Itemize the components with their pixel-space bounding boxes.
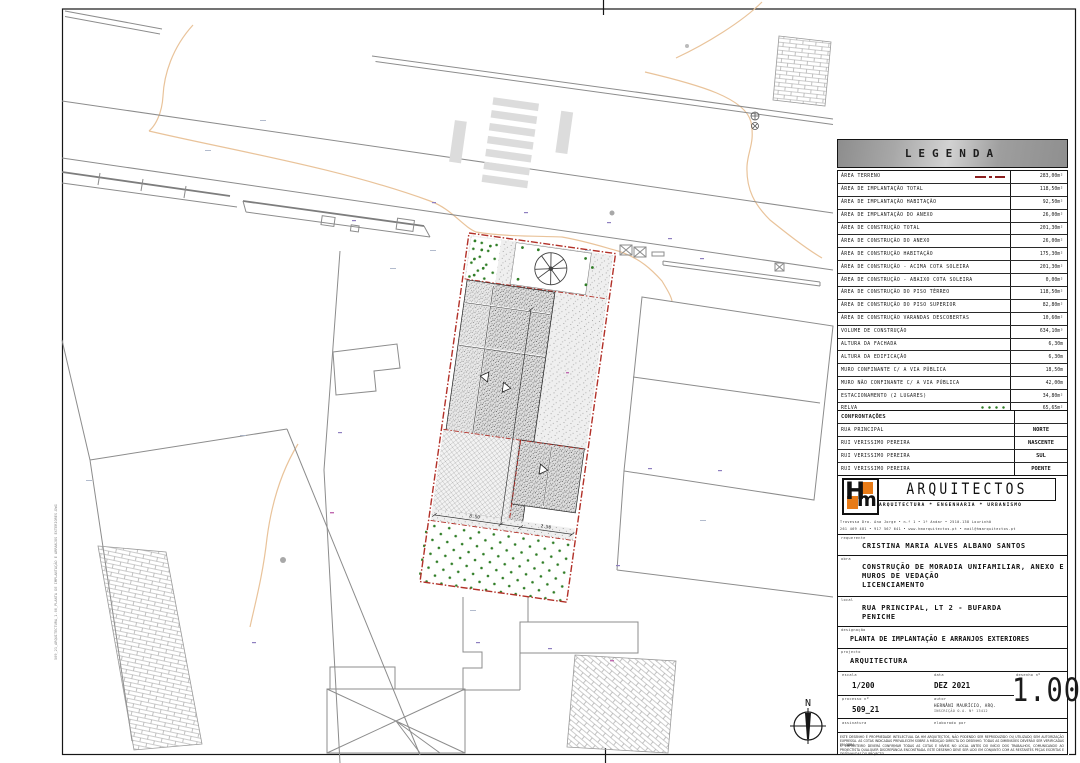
legend-row-value: 118,50m²	[1010, 184, 1067, 196]
legend-row-value: 26,00m²	[1010, 210, 1067, 222]
north-label: N	[805, 698, 811, 709]
confrontation-row: RUI VERISSIMO PEREIRASUL	[838, 449, 1067, 462]
legend-row-label: ÁREA DE IMPLANTAÇÃO TOTAL	[838, 187, 1010, 192]
legend-row-value: 6,30m	[1010, 351, 1067, 363]
label-designacao: designação	[841, 628, 866, 632]
legend-row-value: 175,30m²	[1010, 248, 1067, 260]
label-obra: obra	[841, 557, 851, 561]
legend-row: ÁREA DE CONSTRUÇÃO TOTAL201,30m²	[838, 222, 1067, 235]
label-processo: processo nº	[842, 697, 869, 701]
paved-area-southwest	[98, 546, 202, 750]
legend-row: ÁREA DE CONSTRUÇÃO - ACIMA COTA SOLEIRA2…	[838, 260, 1067, 273]
date-value: DEZ 2021	[934, 681, 970, 690]
confrontation-row: RUI VERISSIMO PEREIRANASCENTE	[838, 436, 1067, 449]
confrontation-name: RUI VERISSIMO PEREIRA	[838, 467, 1014, 472]
legend-row-value: 82,80m²	[1010, 300, 1067, 312]
legend-row: ÁREA DE IMPLANTAÇÃO DO ANEXO26,00m²	[838, 209, 1067, 222]
process-number: 509_21	[852, 705, 879, 714]
lot-group: 8.50 2.50	[418, 233, 616, 602]
annex	[512, 440, 584, 512]
roads	[62, 11, 833, 270]
sheet-number: 1.00	[1012, 672, 1064, 709]
title-block-panel: LEGENDA ÁREA TERRENO283,00m² ÁREA DE IMP…	[837, 139, 1069, 755]
firm-name-box: ARQUITECTOS	[878, 478, 1056, 501]
legend-row: ÁREA DE IMPLANTAÇÃO HABITAÇÃO92,50m²	[838, 196, 1067, 209]
legend-row-label: ÁREA DE CONSTRUÇÃO DO PISO SUPERIOR	[838, 303, 1010, 308]
elevation-marks	[86, 120, 722, 661]
legend-row: MURO NÃO CONFINANTE C/ A VIA PÚBLICA42,0…	[838, 376, 1067, 389]
legend-row-value: 10,60m²	[1010, 313, 1067, 325]
neighbor-buildings-west	[62, 208, 420, 763]
legend-row: VOLUME DE CONSTRUÇÃO634,10m³	[838, 325, 1067, 338]
confrontation-side: NASCENTE	[1014, 437, 1067, 449]
legend-title: LEGENDA	[905, 147, 1000, 160]
legend-row-label: ALTURA DA EDIFICAÇÃO	[838, 355, 1010, 360]
legend-row-value: 6,30m	[1010, 339, 1067, 351]
paved-area-northeast	[773, 36, 831, 106]
author-name: HERNÂNI MAURÍCIO, ARQ.	[934, 703, 996, 708]
label-elaborado: elaborado por	[934, 721, 966, 725]
label-assinatura: assinatura	[842, 721, 867, 725]
legend-header: LEGENDA	[837, 139, 1068, 168]
legend-row-value: 92,50m²	[1010, 197, 1067, 209]
legend-row-label: ÁREA DE CONSTRUÇÃO HABITAÇÃO	[838, 252, 1010, 257]
north-arrow-icon: N	[790, 698, 826, 744]
confrontation-side: SUL	[1014, 450, 1067, 462]
legend-row-label: ÁREA DE IMPLANTAÇÃO HABITAÇÃO	[838, 200, 1010, 205]
confrontations-title: CONFRONTAÇÕES	[838, 414, 1014, 420]
legend-row-label: VOLUME DE CONSTRUÇÃO	[838, 329, 1010, 334]
legend-row-label: ÁREA DE CONSTRUÇÃO DO PISO TÉRREO	[838, 290, 1010, 295]
legend-row: ÁREA DE CONSTRUÇÃO HABITAÇÃO175,30m²	[838, 247, 1067, 260]
legend-row-value: 26,00m²	[1010, 235, 1067, 247]
legend-row-value: 634,10m³	[1010, 326, 1067, 338]
confrontations-header: CONFRONTAÇÕES	[838, 411, 1067, 423]
front-lawn-patch	[465, 236, 501, 286]
legend-row-label: MURO CONFINANTE C/ A VIA PÚBLICA	[838, 368, 1010, 373]
label-autor: autor	[934, 697, 946, 701]
legend-row: ALTURA DA EDIFICAÇÃO6,30m	[838, 350, 1067, 363]
legend-row-value: 118,50m²	[1010, 287, 1067, 299]
client-name: CRISTINA MARIA ALVES ALBANO SANTOS	[862, 542, 1026, 550]
legend-row-label: ALTURA DA FACHADA	[838, 342, 1010, 347]
legend-row-label: ÁREA TERRENO	[838, 174, 975, 179]
label-requerente: requerente	[841, 536, 866, 540]
legend-row-value: 201,30m²	[1010, 261, 1067, 273]
work-line: LICENCIAMENTO	[862, 581, 925, 589]
firm-tagline: ARQUITECTURA * ENGENHARIA * URBANISMO	[879, 503, 1022, 508]
location-line: RUA PRINCIPAL, LT 2 - BUFARDA	[862, 604, 1002, 612]
drawing-sheet: 509_21_ARQUITECTURA_1.00_PLANTA DE IMPLA…	[0, 0, 1080, 763]
margin-file-note: 509_21_ARQUITECTURA_1.00_PLANTA DE IMPLA…	[53, 504, 58, 660]
legend-row: ALTURA DA FACHADA6,30m	[838, 338, 1067, 351]
legend-row-label: ÁREA DE IMPLANTAÇÃO DO ANEXO	[838, 213, 1010, 218]
work-line: MUROS DE VEDAÇÃO	[862, 572, 939, 580]
legend-table: ÁREA TERRENO283,00m² ÁREA DE IMPLANTAÇÃO…	[837, 170, 1068, 429]
confrontation-name: RUA PRINCIPAL	[838, 428, 1014, 433]
work-line: CONSTRUÇÃO DE MORADIA UNIFAMILIAR, ANEXO…	[862, 563, 1064, 571]
legend-row-label: ÁREA DE CONSTRUÇÃO TOTAL	[838, 226, 1010, 231]
legend-row: ÁREA DE CONSTRUÇÃO DO ANEXO26,00m²	[838, 234, 1067, 247]
legend-row: MURO CONFINANTE C/ A VIA PÚBLICA18,50m	[838, 363, 1067, 376]
legend-row-value: 201,30m²	[1010, 223, 1067, 235]
label-projecto: projecto	[841, 650, 861, 654]
firm-logo: H m	[842, 478, 879, 515]
scale-value: 1/200	[852, 681, 875, 690]
legend-row-label: ÁREA DE CONSTRUÇÃO - ABAIXO COTA SOLEIRA	[838, 278, 1010, 283]
label-local: local	[841, 598, 853, 602]
confrontation-row: RUI VERISSIMO PEREIRAPOENTE	[838, 462, 1067, 475]
project-discipline: ARQUITECTURA	[850, 657, 908, 665]
location-line: PENICHE	[862, 613, 896, 621]
confrontations-table: CONFRONTAÇÕES RUA PRINCIPALNORTE RUI VER…	[837, 410, 1068, 476]
crosswalk	[447, 92, 574, 193]
legend-row-label: ESTACIONAMENTO (2 LUGARES)	[838, 394, 1010, 399]
paved-area-southeast	[567, 655, 676, 753]
courtyard-paving	[432, 429, 518, 519]
author-registration: INSCRIÇÃO O.A. Nº 13412	[934, 709, 988, 713]
drawing-title: PLANTA DE IMPLANTAÇÃO E ARRANJOS EXTERIO…	[850, 635, 1029, 643]
legend-row: ÁREA DE CONSTRUÇÃO DO PISO TÉRREO118,50m…	[838, 286, 1067, 299]
confrontation-name: RUI VERISSIMO PEREIRA	[838, 454, 1014, 459]
legend-row-label: ÁREA DE CONSTRUÇÃO DO ANEXO	[838, 239, 1010, 244]
legend-row-value: 283,00m²	[1010, 171, 1067, 183]
legend-row: ÁREA DE IMPLANTAÇÃO TOTAL118,50m²	[838, 183, 1067, 196]
confrontation-side: NORTE	[1014, 424, 1067, 436]
firm-contacts: 261 469 481 • 917 567 641 • www.hmarquit…	[840, 527, 1066, 531]
firm-address: Travessa Dra. Ana Jorge • n.º 1 • 1º And…	[840, 520, 1066, 524]
logo-letter-m: m	[857, 489, 877, 511]
fine-print: O EMPREITEIRO DEVERÁ CONFIRMAR TODAS AS …	[840, 744, 1064, 757]
legend-row-value: 34,80m²	[1010, 390, 1067, 402]
legend-row-value: 0,00m²	[1010, 274, 1067, 286]
title-block: H m ARQUITECTOS ARQUITECTURA * ENGENHARI…	[837, 475, 1068, 755]
legend-row: ESTACIONAMENTO (2 LUGARES)34,80m²	[838, 389, 1067, 402]
legend-row-label: ÁREA DE CONSTRUÇÃO VARANDAS DESCOBERTAS	[838, 316, 1010, 321]
legend-row-label: MURO NÃO CONFINANTE C/ A VIA PÚBLICA	[838, 381, 1010, 386]
label-data: data	[934, 673, 944, 677]
label-escala: escala	[842, 673, 857, 677]
legend-row-value: 18,50m	[1010, 364, 1067, 376]
legend-row: ÁREA DE CONSTRUÇÃO VARANDAS DESCOBERTAS1…	[838, 312, 1067, 325]
firm-name: ARQUITECTOS	[906, 480, 1027, 499]
confrontation-row: RUA PRINCIPALNORTE	[838, 423, 1067, 436]
confrontation-name: RUI VERISSIMO PEREIRA	[838, 441, 1014, 446]
legend-row-value: 42,00m	[1010, 377, 1067, 389]
legend-row-label: ÁREA DE CONSTRUÇÃO - ACIMA COTA SOLEIRA	[838, 265, 1010, 270]
legend-row: ÁREA DE CONSTRUÇÃO DO PISO SUPERIOR82,80…	[838, 299, 1067, 312]
legend-row: ÁREA TERRENO283,00m²	[838, 171, 1067, 183]
legend-row: ÁREA DE CONSTRUÇÃO - ABAIXO COTA SOLEIRA…	[838, 273, 1067, 286]
neighbor-parcels-east	[617, 245, 833, 597]
property-line-symbol	[975, 176, 1005, 179]
confrontation-side: POENTE	[1014, 463, 1067, 475]
